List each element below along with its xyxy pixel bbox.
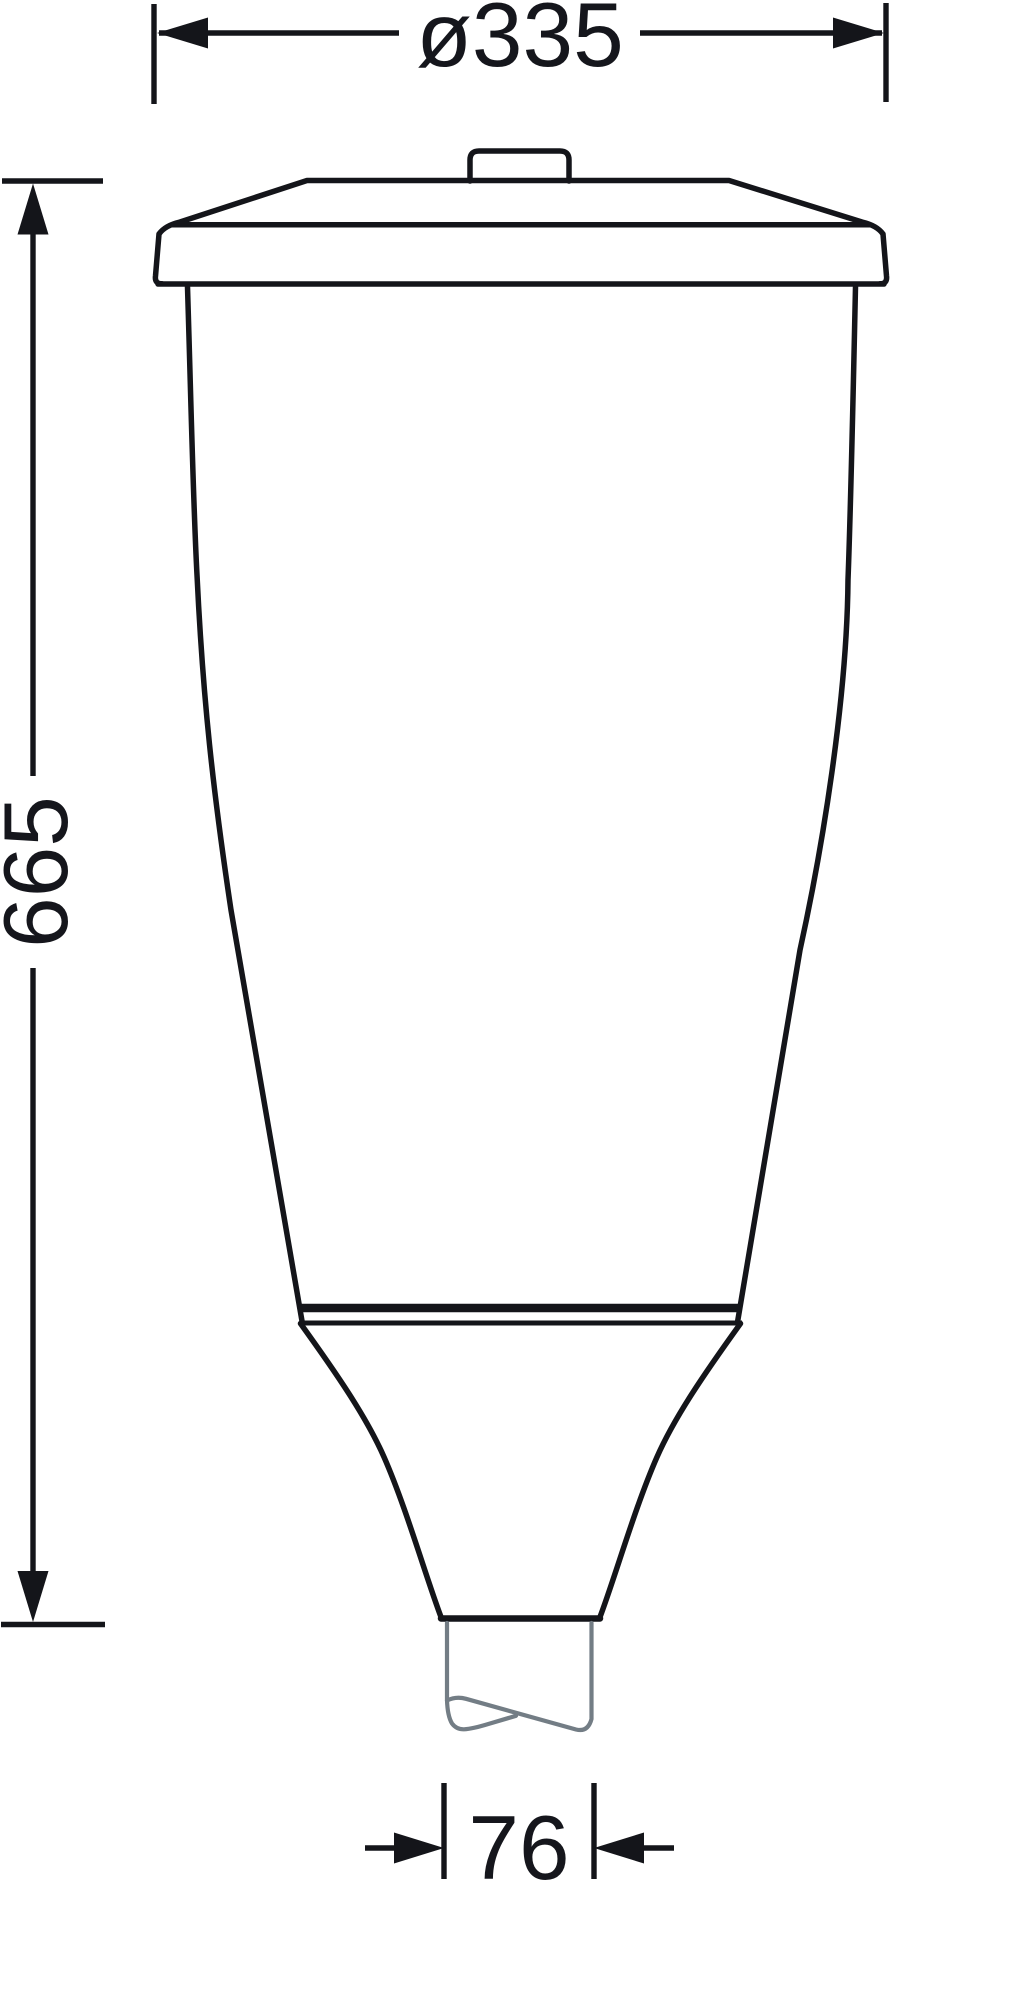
svg-text:76: 76 — [468, 1798, 569, 1899]
svg-text:665: 665 — [0, 796, 87, 948]
svg-text:ø335: ø335 — [416, 0, 623, 86]
